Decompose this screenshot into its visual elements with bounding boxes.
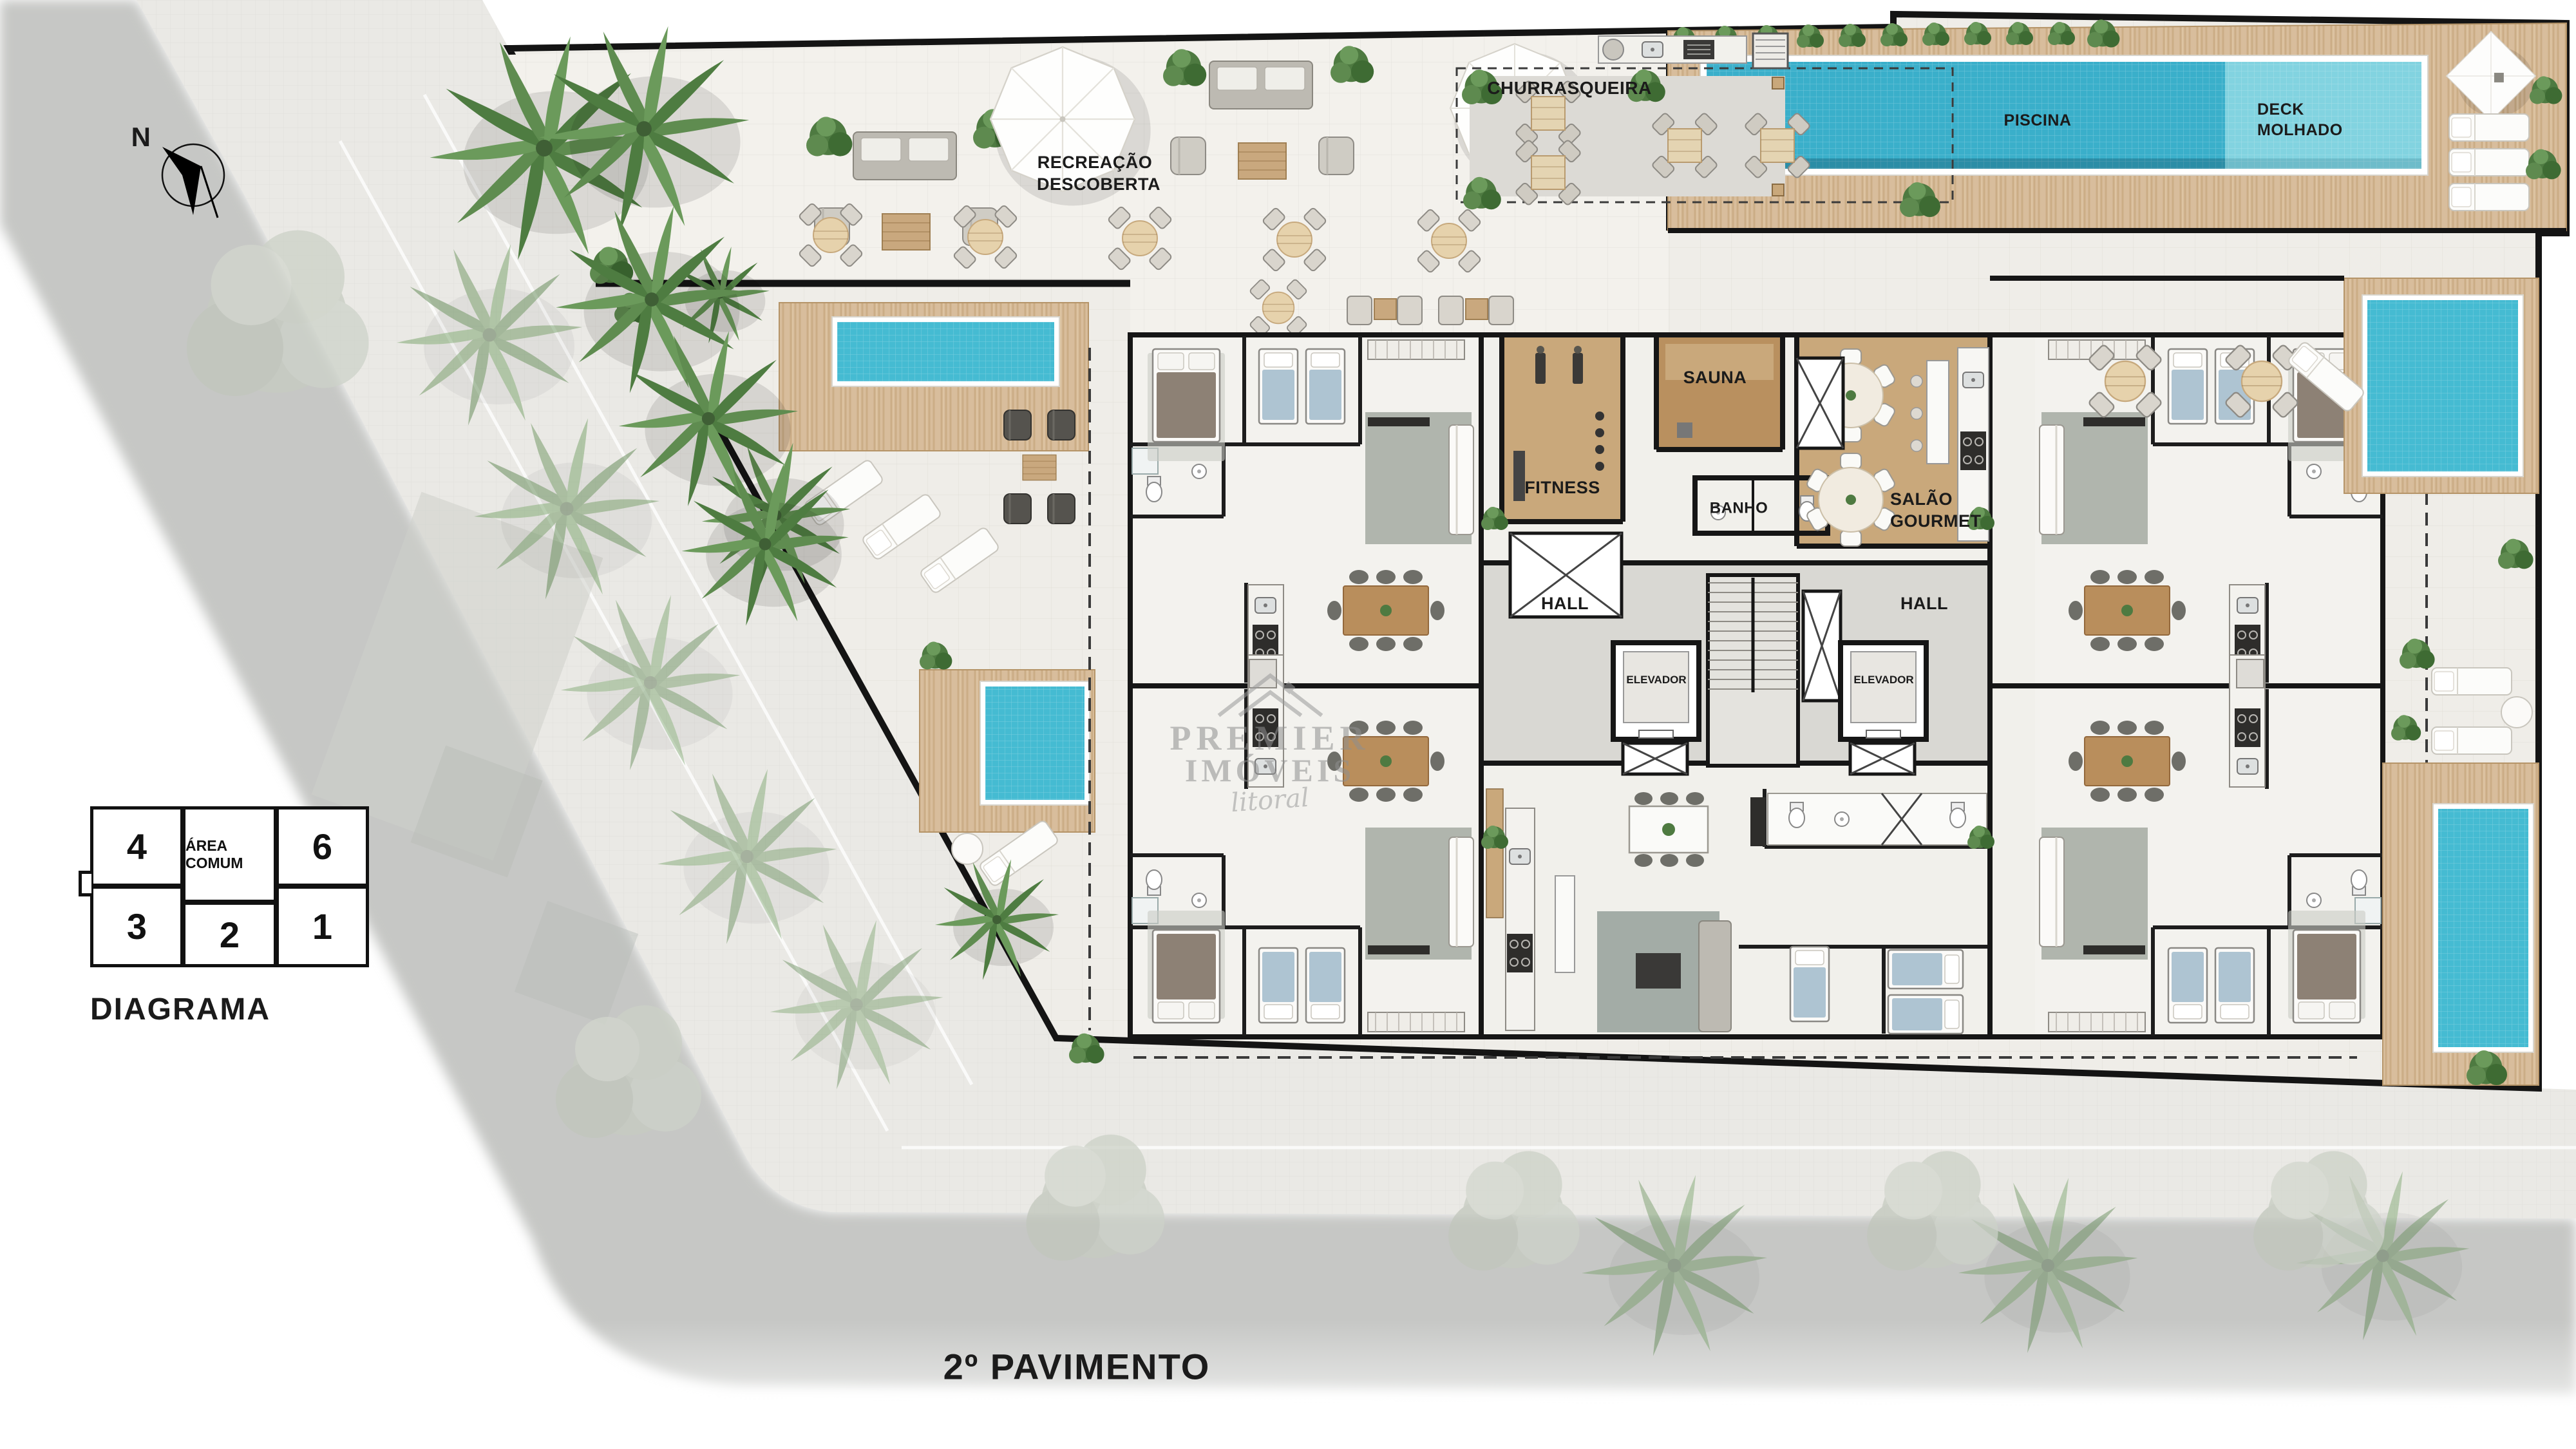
legend-title: DIAGRAMA bbox=[90, 991, 270, 1028]
elevador-left-label: ELEVADOR bbox=[1626, 674, 1686, 687]
churrasqueira-label: CHURRASQUEIRA bbox=[1487, 77, 1651, 99]
watermark-line1: PREMIER bbox=[1170, 722, 1370, 754]
legend-cell-3: 3 bbox=[90, 885, 184, 967]
legend-cell-area-comum: ÁREA COMUM bbox=[182, 806, 277, 903]
deck-molhado-label-line2: MOLHADO bbox=[2257, 120, 2343, 140]
stairs bbox=[1708, 575, 1798, 766]
apartment-1 bbox=[2035, 655, 2383, 1036]
deck-molhado-label-line1: DECK bbox=[2257, 100, 2304, 119]
recreacao-label-line1: RECREAÇÃO bbox=[1037, 152, 1153, 173]
hall-left-label: HALL bbox=[1541, 593, 1589, 614]
pool-deck-molhado bbox=[2225, 62, 2421, 169]
sauna-label: SAUNA bbox=[1683, 367, 1747, 388]
banho-label: BANHO bbox=[1710, 500, 1768, 518]
legend-notch bbox=[79, 871, 91, 896]
apartment-4 bbox=[1130, 336, 1478, 717]
floor-title: 2º PAVIMENTO bbox=[943, 1345, 1211, 1388]
legend-cell-4: 4 bbox=[90, 806, 184, 887]
floor-plan-page: N RECREAÇÃO DESCOBERTA CHURRASQUEIRA PIS… bbox=[0, 0, 2576, 1449]
watermark-roof-icon bbox=[1199, 664, 1341, 722]
legend-cell-6: 6 bbox=[276, 806, 369, 887]
bbq-hatch bbox=[1753, 33, 1788, 68]
elevator-left bbox=[1613, 643, 1699, 739]
legend-cell-1: 1 bbox=[276, 885, 369, 967]
salao-gourmet-label-line1: SALÃO bbox=[1890, 489, 1953, 509]
piscina-label: PISCINA bbox=[2004, 111, 2072, 130]
legend-cell-2: 2 bbox=[182, 902, 277, 967]
elevator-right bbox=[1841, 643, 1926, 739]
salao-gourmet-label-line2: GOURMET bbox=[1890, 511, 1982, 531]
recreacao-label-line2: DESCOBERTA bbox=[1037, 174, 1160, 194]
developer-watermark: PREMIER IMÓVEIS litoral bbox=[1170, 664, 1370, 815]
hall-right-label: HALL bbox=[1900, 593, 1948, 614]
fitness-label: FITNESS bbox=[1524, 477, 1600, 498]
elevador-right-label: ELEVADOR bbox=[1853, 674, 1913, 687]
compass-north-label: N bbox=[131, 121, 151, 153]
